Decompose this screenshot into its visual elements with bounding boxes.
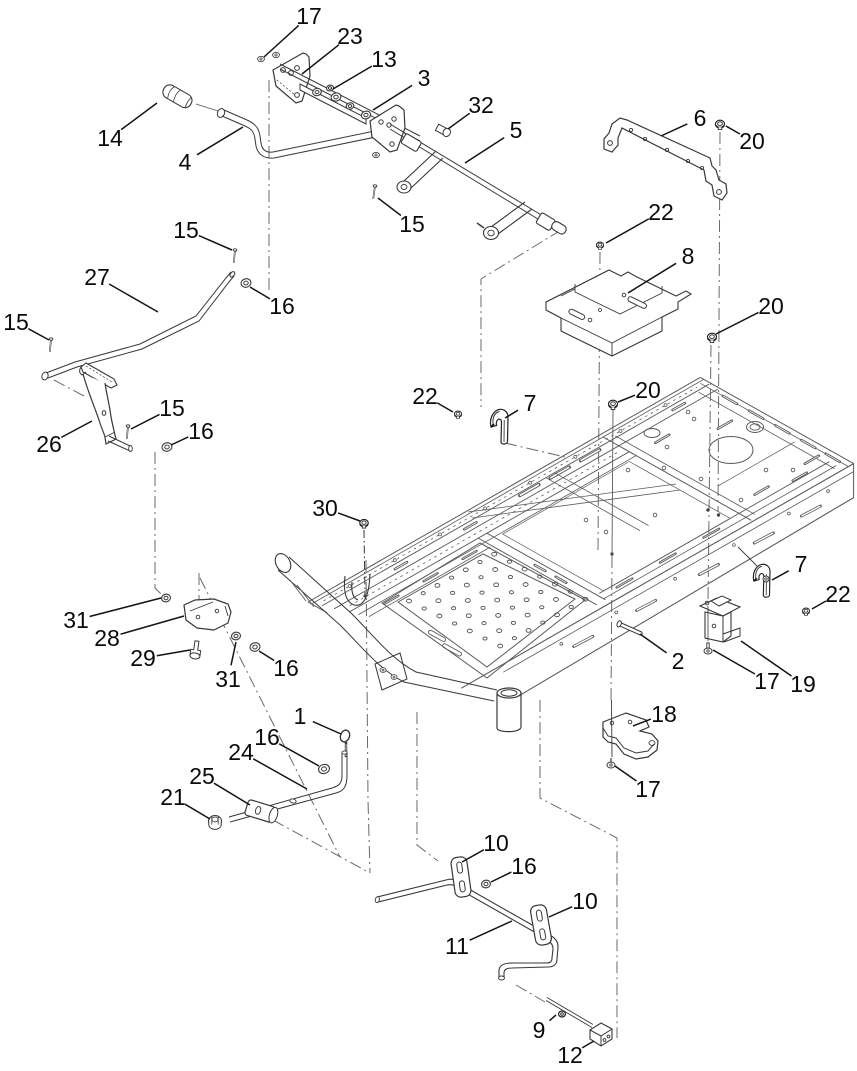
svg-text:12: 12 bbox=[557, 1042, 583, 1068]
svg-text:16: 16 bbox=[188, 418, 214, 444]
svg-text:3: 3 bbox=[418, 65, 431, 91]
svg-text:32: 32 bbox=[468, 92, 494, 118]
svg-text:28: 28 bbox=[94, 625, 120, 651]
svg-text:20: 20 bbox=[758, 293, 784, 319]
svg-text:11: 11 bbox=[445, 933, 469, 959]
svg-text:7: 7 bbox=[524, 390, 537, 416]
svg-text:16: 16 bbox=[273, 655, 299, 681]
svg-text:17: 17 bbox=[635, 776, 661, 802]
svg-text:15: 15 bbox=[399, 211, 425, 237]
svg-text:9: 9 bbox=[533, 1017, 546, 1043]
svg-text:22: 22 bbox=[412, 383, 438, 409]
svg-text:16: 16 bbox=[254, 724, 280, 750]
svg-text:18: 18 bbox=[651, 701, 677, 727]
svg-text:13: 13 bbox=[371, 46, 397, 72]
svg-text:21: 21 bbox=[160, 784, 186, 810]
svg-text:20: 20 bbox=[635, 377, 661, 403]
svg-text:14: 14 bbox=[97, 125, 123, 151]
svg-text:27: 27 bbox=[84, 264, 110, 290]
svg-text:24: 24 bbox=[228, 739, 254, 765]
svg-text:6: 6 bbox=[694, 105, 707, 131]
svg-text:17: 17 bbox=[296, 3, 322, 29]
svg-text:22: 22 bbox=[648, 199, 674, 225]
svg-text:29: 29 bbox=[130, 645, 156, 671]
svg-text:30: 30 bbox=[312, 495, 338, 521]
svg-text:10: 10 bbox=[572, 888, 598, 914]
svg-text:17: 17 bbox=[754, 668, 780, 694]
svg-text:31: 31 bbox=[215, 666, 241, 692]
svg-text:22: 22 bbox=[825, 581, 851, 607]
svg-text:16: 16 bbox=[269, 293, 295, 319]
svg-text:7: 7 bbox=[795, 551, 808, 577]
svg-text:26: 26 bbox=[36, 431, 62, 457]
svg-text:15: 15 bbox=[3, 309, 29, 335]
svg-text:16: 16 bbox=[511, 853, 537, 879]
svg-text:15: 15 bbox=[159, 395, 185, 421]
svg-text:8: 8 bbox=[682, 243, 695, 269]
svg-text:19: 19 bbox=[790, 671, 816, 697]
svg-text:10: 10 bbox=[483, 830, 509, 856]
svg-text:25: 25 bbox=[189, 763, 215, 789]
svg-text:20: 20 bbox=[739, 128, 765, 154]
svg-text:4: 4 bbox=[179, 149, 192, 175]
svg-text:31: 31 bbox=[63, 607, 89, 633]
svg-text:5: 5 bbox=[510, 117, 523, 143]
svg-text:23: 23 bbox=[337, 23, 363, 49]
svg-text:2: 2 bbox=[672, 648, 685, 674]
svg-text:15: 15 bbox=[173, 217, 199, 243]
svg-text:1: 1 bbox=[294, 703, 307, 729]
